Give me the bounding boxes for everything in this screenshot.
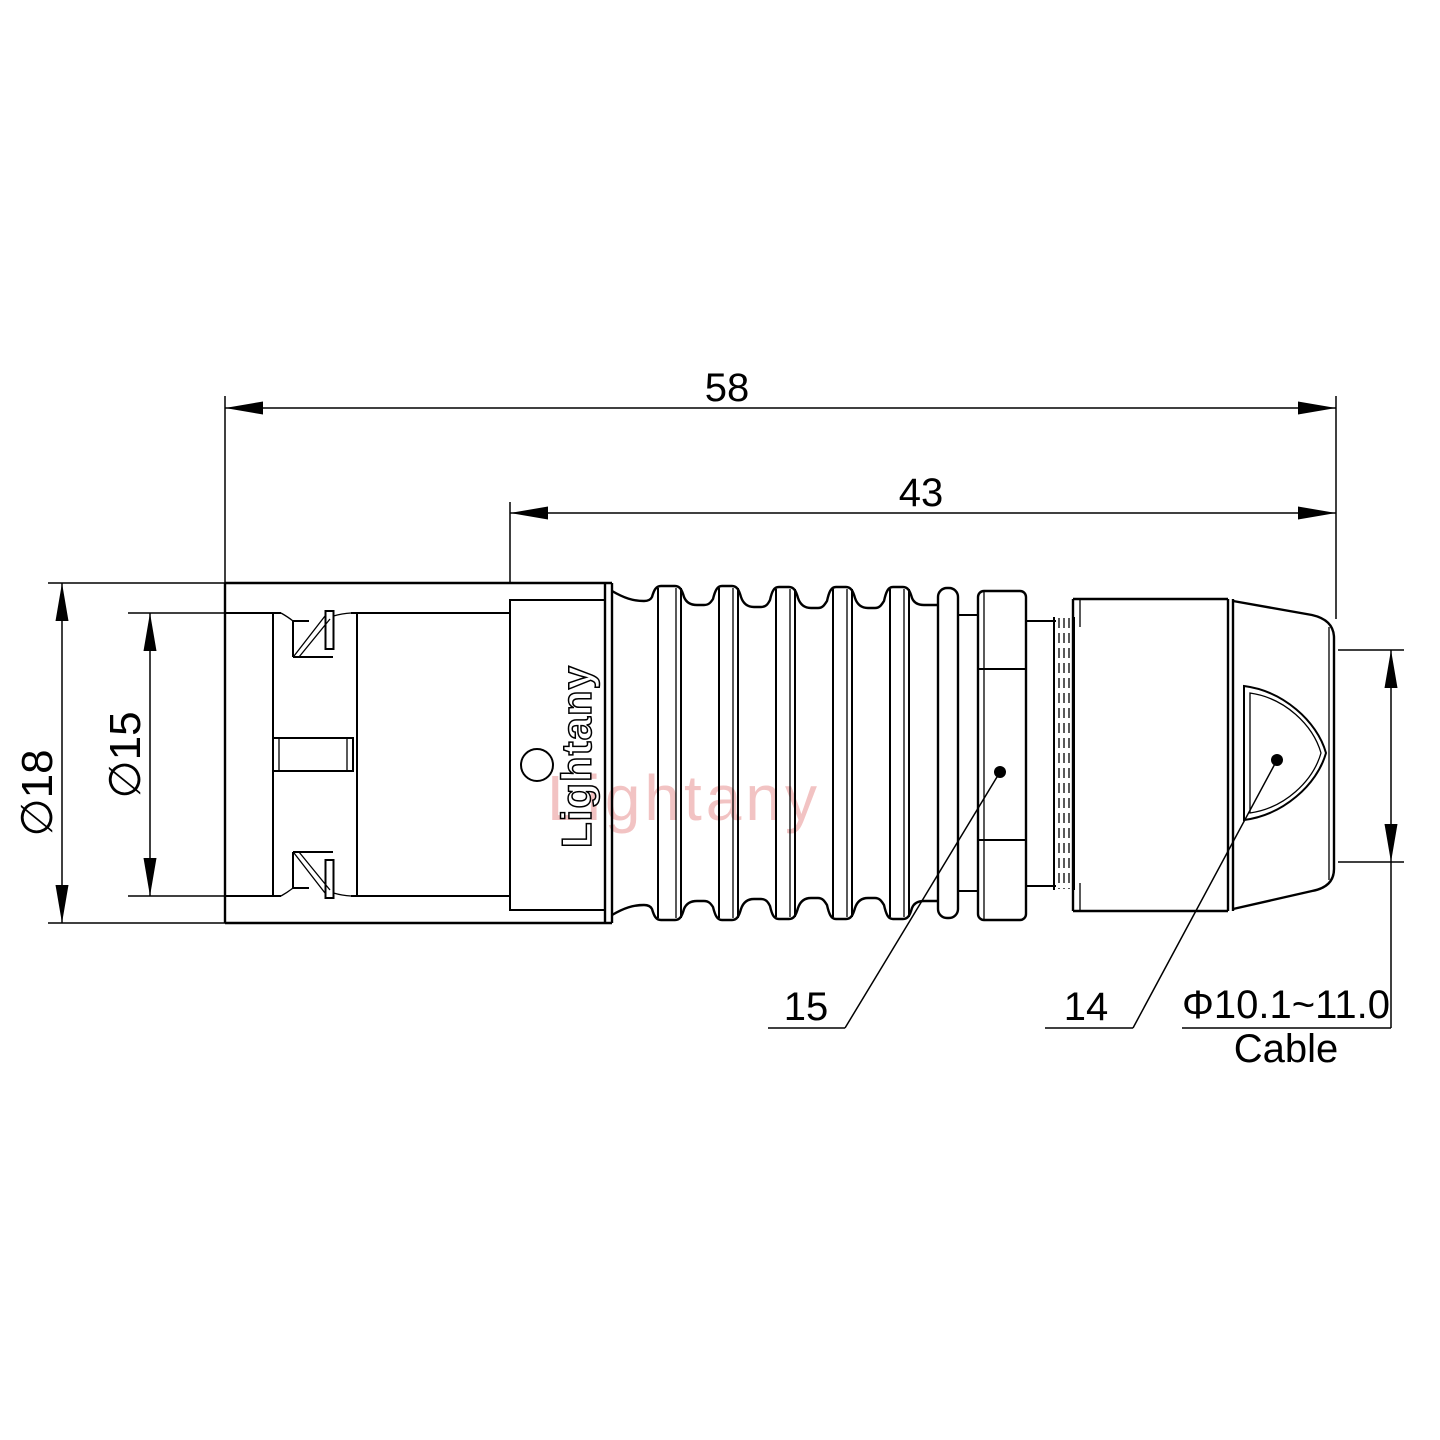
- brand-panel: Lightany: [510, 600, 605, 910]
- dim-cable: Φ10.1~11.0 Cable: [1182, 650, 1404, 1071]
- latch-window-rect: [273, 738, 353, 771]
- dim-overall-length-label: 58: [705, 366, 750, 410]
- latch-hook-bottom: [281, 852, 351, 898]
- rear-barrel: [1073, 599, 1233, 911]
- gland-nut: [978, 591, 1026, 920]
- neck-rear: [1026, 621, 1056, 886]
- dim-rear-length-label: 43: [899, 471, 944, 515]
- rear-barrel-end-lines: [1228, 599, 1233, 911]
- latch-window-walls: [279, 738, 347, 771]
- serration-ring: [1054, 617, 1074, 890]
- diameter-15-label: ∅15: [101, 711, 150, 798]
- latch-window: [273, 738, 353, 771]
- bellows-rib-inner-lines: [676, 588, 904, 918]
- cable-spec-label: Φ10.1~11.0: [1182, 983, 1390, 1027]
- brand-text: Lightany: [553, 665, 600, 848]
- bellows-rib-right-edges: [681, 588, 909, 918]
- hook-bottom-right-arc: [334, 893, 352, 896]
- dim58-arrow-right: [1298, 402, 1336, 415]
- cable-word-label: Cable: [1234, 1027, 1339, 1071]
- bellows-rib-left-edges: [658, 588, 890, 918]
- latch-hook-top: [281, 611, 351, 657]
- sleeve-end-band: [605, 583, 612, 923]
- dim43-arrow-left: [510, 507, 548, 520]
- hook-bottom-bar: [326, 860, 334, 898]
- bellows: [612, 586, 958, 920]
- neck-front: [958, 615, 978, 891]
- technical-drawing-page: Lightany Lightany: [0, 0, 1440, 1440]
- diameter-18-label: ∅18: [13, 749, 62, 836]
- serration-teeth: [1059, 618, 1069, 889]
- callout-15-leader: [845, 772, 1000, 1028]
- cable-funnel-inner: [1250, 693, 1321, 813]
- dia18-arrow-top: [56, 583, 69, 621]
- strain-relief-cone: [1233, 601, 1334, 909]
- hook-bottom-left-arc: [281, 888, 293, 896]
- rear-barrel-outline: [1073, 599, 1228, 911]
- hook-top-left-arc: [281, 613, 293, 621]
- dim-inner-diameter: ∅15: [101, 613, 225, 896]
- hook-top-bar: [326, 611, 334, 649]
- part-15-label: 15: [784, 985, 829, 1029]
- dim-overall-length: 58: [225, 366, 1336, 619]
- dia15-arrow-bottom: [144, 858, 157, 896]
- gland-nut-flats: [978, 669, 1026, 840]
- dia18-arrow-bottom: [56, 885, 69, 923]
- dim-rear-length: 43: [510, 471, 1336, 583]
- cone-outline: [1233, 601, 1334, 909]
- part-14-label: 14: [1064, 985, 1109, 1029]
- dia15-arrow-top: [144, 613, 157, 651]
- connector-drawing: Lightany Lightany: [0, 0, 1440, 1440]
- cable-arrow-bottom: [1385, 824, 1398, 862]
- dim43-arrow-right: [1298, 507, 1336, 520]
- gland-nut-body: [978, 591, 1026, 920]
- hook-top-right-arc: [334, 613, 352, 616]
- dim58-arrow-left: [225, 402, 263, 415]
- cable-arrow-top: [1385, 650, 1398, 688]
